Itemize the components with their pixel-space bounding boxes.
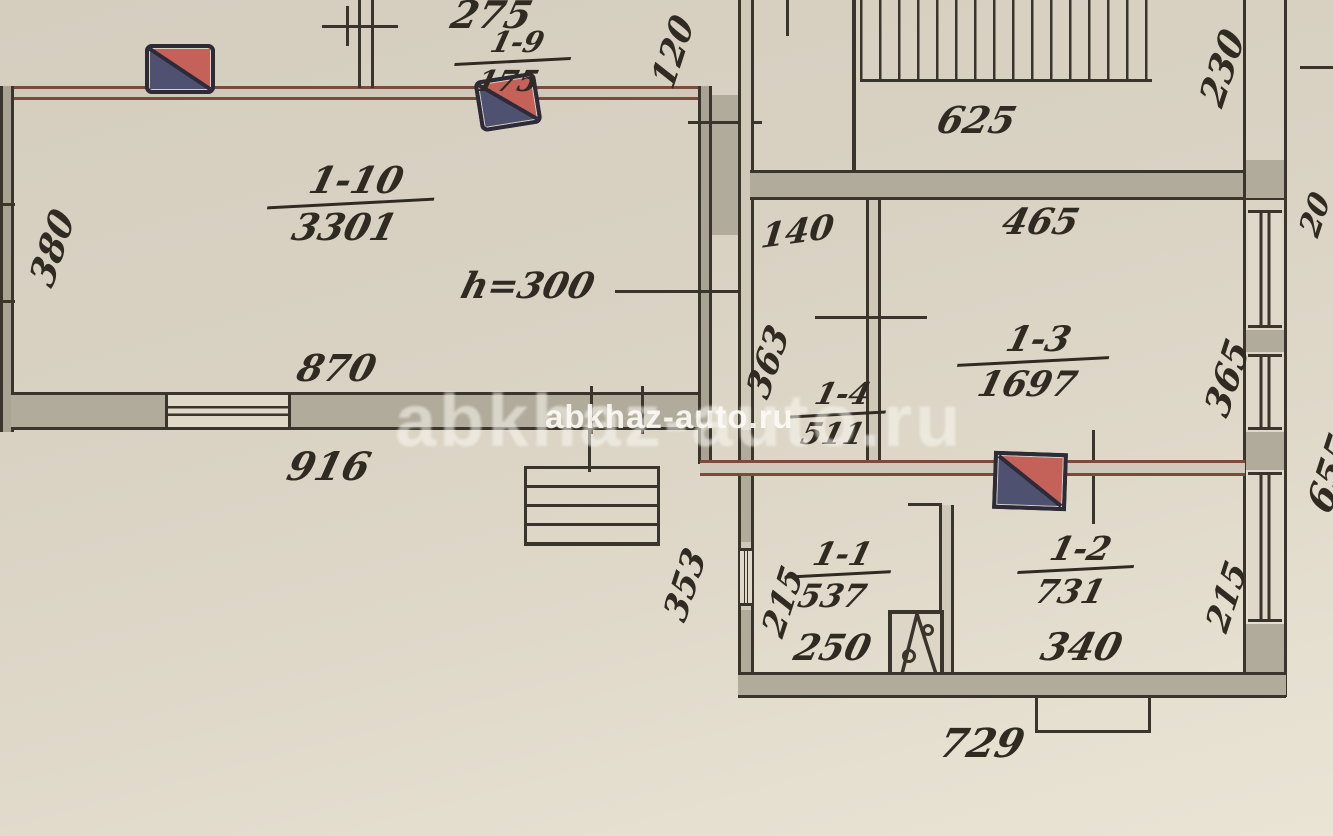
- dimension-tick-275: [346, 6, 349, 46]
- dimension-140: 140: [759, 210, 835, 254]
- wall-left-exterior: [0, 86, 14, 432]
- room-area: 731: [1009, 575, 1132, 608]
- entrance-steps: [524, 466, 660, 546]
- stove-icon: [145, 44, 215, 94]
- wall-fragment-above: [358, 0, 374, 88]
- dimension-353: 353: [659, 543, 711, 627]
- watermark-small: abkhaz-auto.ru: [545, 398, 794, 436]
- dimension-line-275: [322, 25, 398, 28]
- dimension-20: 20: [1296, 188, 1333, 242]
- extension-line-h300: [615, 290, 747, 293]
- dimension-916: 916: [283, 448, 374, 487]
- room-number: 1-10: [269, 162, 443, 199]
- dimension-625: 625: [933, 102, 1019, 139]
- staircase: [860, 0, 1152, 82]
- dimension-729: 729: [935, 724, 1028, 764]
- wall-tick: [0, 203, 15, 206]
- stairwell-left-wall: [852, 0, 856, 172]
- dimension-655: 655: [1302, 428, 1333, 519]
- room-area: 175: [447, 67, 569, 96]
- room-area: 3301: [258, 209, 432, 246]
- room-label-1-9: 1-9 175: [447, 28, 579, 96]
- wall-right-outer-line: [1284, 0, 1287, 697]
- wall-segment: [1246, 160, 1284, 198]
- dimension-870: 870: [293, 350, 379, 387]
- room-label-1-10: 1-10 3301: [258, 162, 444, 246]
- wall-corridor: [750, 170, 1286, 200]
- wall-fragment: [1300, 66, 1333, 69]
- room-number: 1-3: [959, 322, 1118, 357]
- wall-segment: [741, 610, 751, 672]
- wall-segment: [1246, 432, 1284, 470]
- window-left-wall: [740, 548, 752, 606]
- window-right-wall: [1248, 210, 1282, 328]
- partition-tick: [908, 503, 942, 506]
- ceiling-height-note: h=300: [458, 268, 598, 304]
- room-area: 1697: [948, 367, 1107, 402]
- wall-bottom-right-building: [738, 672, 1286, 698]
- room-label-1-2: 1-2 731: [1009, 532, 1143, 608]
- window-right-wall: [1248, 472, 1282, 622]
- room-label-1-3: 1-3 1697: [948, 322, 1118, 402]
- dimension-465: 465: [999, 204, 1083, 240]
- dimension-365: 365: [1200, 334, 1256, 423]
- dimension-380: 380: [25, 204, 81, 293]
- dimension-340: 340: [1037, 628, 1126, 666]
- room-number: 1-9: [456, 28, 578, 57]
- wall-segment: [1246, 624, 1284, 674]
- floor-plan: 275 1-9 175 120 1-10 3301 380 h=300 870 …: [0, 0, 1333, 836]
- wall-top-left-building: [0, 86, 712, 100]
- dimension-230: 230: [1195, 24, 1251, 113]
- room-number: 1-2: [1019, 532, 1142, 565]
- room-number: 1-1: [786, 538, 899, 570]
- wall-connector: [712, 95, 738, 235]
- extension-line: [1092, 430, 1095, 524]
- toilet-symbol-icon: [884, 606, 948, 676]
- dimension-250: 250: [791, 630, 875, 666]
- wall-fragment: [786, 0, 789, 36]
- lobby-tick-line: [815, 316, 927, 319]
- window-bottom-left-building: [165, 395, 291, 427]
- entrance-porch: [1035, 697, 1151, 733]
- dimension-120: 120: [647, 10, 699, 94]
- wall-tick: [0, 300, 15, 303]
- stove-icon: [992, 451, 1068, 512]
